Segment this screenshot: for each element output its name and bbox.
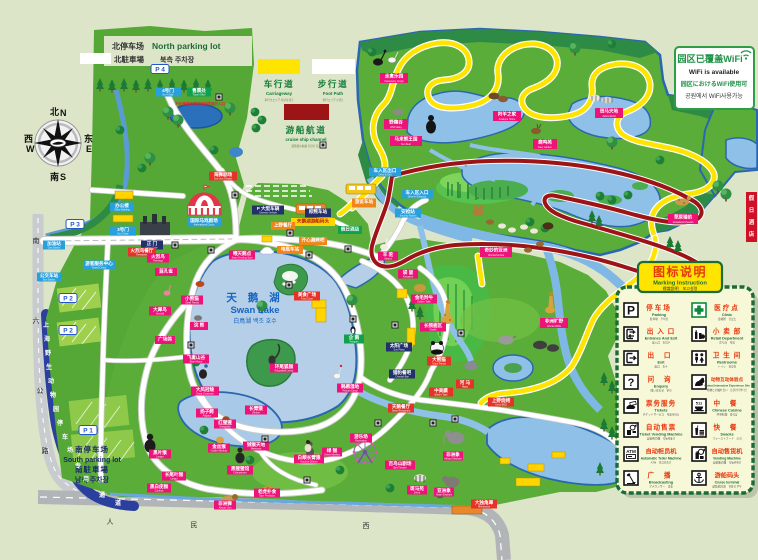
svg-text:Retail Department: Retail Department <box>711 337 744 341</box>
svg-text:チケットサービス 매표서비스: チケットサービス 매표서비스 <box>643 413 680 417</box>
svg-text:Antelope Home: Antelope Home <box>499 118 516 121</box>
svg-text:Giant Panda: Giant Panda <box>432 363 446 366</box>
svg-text:Security Station: Security Station <box>400 215 417 218</box>
svg-text:南: 南 <box>50 171 59 182</box>
svg-text:Swan Lake: Swan Lake <box>230 305 279 316</box>
svg-text:野: 野 <box>45 349 51 357</box>
svg-text:511: 511 <box>696 401 703 406</box>
svg-text:Cassowary Jungle: Cassowary Jungle <box>384 80 404 83</box>
svg-text:No.3 Gate: No.3 Gate <box>118 233 130 236</box>
svg-text:ATM: ATM <box>626 449 636 454</box>
svg-text:北: 北 <box>50 106 59 117</box>
svg-text:W: W <box>26 144 35 154</box>
svg-text:Animal Interactive Experience: Animal Interactive Experience Site <box>704 384 750 388</box>
svg-text:西: 西 <box>363 522 370 530</box>
svg-text:Restrooms: Restrooms <box>717 361 737 365</box>
svg-text:车行道: 车行道 <box>264 78 295 89</box>
svg-text:动: 动 <box>48 377 54 385</box>
svg-text:Colobus: Colobus <box>155 490 165 493</box>
svg-text:車行きエリア 차량 통행로: 車行きエリア 차량 통행로 <box>265 98 295 102</box>
svg-text:道: 道 <box>115 499 121 507</box>
svg-text:Sea Lion Theater: Sea Lion Theater <box>214 178 233 181</box>
svg-text:酒: 酒 <box>749 218 755 226</box>
svg-text:路: 路 <box>42 446 49 455</box>
svg-text:上: 上 <box>43 321 49 329</box>
svg-text:cruise ship channel: cruise ship channel <box>286 137 327 142</box>
svg-text:Bird Theater: Bird Theater <box>393 467 406 470</box>
svg-text:African Elephant: African Elephant <box>444 458 462 461</box>
svg-text:卫 生 间: 卫 生 间 <box>713 351 741 360</box>
svg-text:停车场: 停车场 <box>646 303 672 312</box>
svg-text:专: 专 <box>75 462 81 470</box>
svg-text:공원에서 WiFi사용가능: 공원에서 WiFi사용가능 <box>685 92 743 100</box>
svg-text:Wild Valley: Wild Valley <box>390 126 402 129</box>
svg-text:診療所 진료소: 診療所 진료소 <box>718 317 737 321</box>
svg-text:Golden Monkey: Golden Monkey <box>211 450 229 453</box>
svg-text:广 播: 广 播 <box>647 471 674 480</box>
svg-text:Vending Machine: Vending Machine <box>713 457 741 461</box>
svg-text:蓝孔雀: 蓝孔雀 <box>159 267 173 274</box>
svg-text:出入口 출입구: 出入口 출입구 <box>652 341 671 345</box>
svg-text:马来熊王国: 马来熊王国 <box>395 136 418 143</box>
svg-text:海: 海 <box>44 335 50 343</box>
svg-text:快 餐: 快 餐 <box>713 423 740 432</box>
svg-text:Carriageway: Carriageway <box>266 91 293 96</box>
svg-text:P 4: P 4 <box>155 67 165 74</box>
svg-text:自動販売機 자동판매기: 自動販売機 자동판매기 <box>713 461 742 465</box>
svg-text:N: N <box>60 108 67 118</box>
svg-text:Ticket Office: Ticket Office <box>192 94 206 97</box>
svg-text:P 3: P 3 <box>70 222 80 229</box>
svg-text:步行道: 步行道 <box>318 78 349 89</box>
svg-text:开心涮烤吧: 开心涮烤吧 <box>302 236 325 243</box>
svg-text:Great Curassow: Great Curassow <box>196 393 214 396</box>
svg-text:医疗点: 医疗点 <box>714 303 740 312</box>
svg-text:Entrance And Exit: Entrance And Exit <box>645 337 678 341</box>
svg-text:Gibbon: Gibbon <box>252 412 260 415</box>
svg-text:Wonderful Asia: Wonderful Asia <box>488 254 505 257</box>
svg-text:Clinic: Clinic <box>722 313 732 317</box>
svg-text:民: 民 <box>191 521 198 529</box>
svg-text:Parking: Parking <box>652 313 667 317</box>
svg-text:斑马天地: 斑马天地 <box>600 108 619 115</box>
svg-text:P 2: P 2 <box>63 296 73 303</box>
svg-text:日: 日 <box>749 207 755 214</box>
svg-text:Deer Garden: Deer Garden <box>538 146 552 149</box>
svg-text:African Wilds: African Wilds <box>547 325 562 328</box>
svg-text:问 询: 问 询 <box>647 375 674 384</box>
svg-text:遊覧船の航路 유람선 항로: 遊覧船の航路 유람선 항로 <box>292 144 322 148</box>
svg-text:Pelican Camp: Pelican Camp <box>343 390 359 393</box>
svg-text:ATM 현금인출기: ATM 현금인출기 <box>651 461 672 465</box>
svg-text:Langur: Langur <box>170 478 178 481</box>
svg-text:International Circus: International Circus <box>194 224 215 227</box>
svg-text:Foot Path: Foot Path <box>323 91 344 96</box>
svg-text:浣 熊: 浣 熊 <box>194 321 205 328</box>
svg-text:游览车站: 游览车站 <box>355 198 374 205</box>
svg-text:自動券売機 자동매표기: 自動券売機 자동매표기 <box>647 437 676 441</box>
svg-text:园区におけるWiFi使用可: 园区におけるWiFi使用可 <box>681 80 748 88</box>
svg-text:人: 人 <box>107 518 114 526</box>
svg-text:売り店 매점: 売り店 매점 <box>719 341 735 345</box>
svg-text:Ring-tailed Lemur: Ring-tailed Lemur <box>275 370 294 373</box>
svg-text:African Lion: African Lion <box>219 507 232 510</box>
svg-text:南停车场: 南停车场 <box>75 444 109 454</box>
svg-text:Cheetah Bar: Cheetah Bar <box>395 376 409 379</box>
svg-text:Drive-in Exit: Drive-in Exit <box>379 174 392 177</box>
svg-text:白鳥湖 백조 호수: 白鳥湖 백조 호수 <box>233 317 277 325</box>
svg-text:场: 场 <box>67 446 73 454</box>
svg-text:Recreation: Recreation <box>355 440 367 443</box>
svg-text:鹿鸣苑: 鹿鸣苑 <box>538 139 552 146</box>
svg-text:Sun Plaza: Sun Plaza <box>394 349 406 352</box>
svg-text:Drive-in Entrance: Drive-in Entrance <box>408 196 427 199</box>
svg-text:草原猎豹: 草原猎豹 <box>674 214 693 221</box>
svg-text:Sun Bear: Sun Bear <box>401 143 411 146</box>
svg-text:Kangaroo: Kangaroo <box>403 276 414 279</box>
svg-text:公: 公 <box>37 387 44 395</box>
svg-text:Cruise terminal: Cruise terminal <box>715 481 740 485</box>
svg-text:羚羊之家: 羚羊之家 <box>498 111 517 118</box>
svg-text:Bus Station: Bus Station <box>43 279 56 282</box>
svg-text:Office Building: Office Building <box>114 209 130 212</box>
svg-text:园区已覆盖WiFi: 园区已覆盖WiFi <box>677 53 742 64</box>
svg-text:Penguin: Penguin <box>350 341 359 344</box>
svg-text:假: 假 <box>749 194 755 202</box>
svg-text:Baird's Tapir: Baird's Tapir <box>434 394 447 397</box>
svg-text:园: 园 <box>53 405 59 413</box>
svg-text:アナウンサー 방송: アナウンサー 방송 <box>649 485 673 489</box>
svg-text:E: E <box>86 144 92 154</box>
svg-text:North parking lot: North parking lot <box>152 41 221 51</box>
svg-text:不含骑乘动物园体验项目的入口: 不含骑乘动物园体验项目的入口 <box>175 101 226 106</box>
svg-text:歩行エリア 보행로: 歩行エリア 보행로 <box>323 98 344 102</box>
svg-text:S: S <box>60 172 66 182</box>
svg-text:WiFi is available: WiFi is available <box>689 69 740 76</box>
svg-text:問い合わせ 문의: 問い合わせ 문의 <box>650 389 672 393</box>
svg-text:Gas Station: Gas Station <box>48 247 61 250</box>
svg-text:Rhinoceros: Rhinoceros <box>478 506 491 509</box>
svg-text:Swan Feeding Spot: Swan Feeding Spot <box>232 257 253 260</box>
svg-text:ファーストフード 스낵: ファーストフード 스낵 <box>713 437 743 441</box>
svg-text:西: 西 <box>24 134 33 144</box>
svg-text:Langur: Langur <box>156 456 164 459</box>
svg-text:Swan Restaurant: Swan Restaurant <box>392 410 411 413</box>
svg-text:Hornbill: Hornbill <box>156 313 165 316</box>
svg-text:电瓶车站: 电瓶车站 <box>281 245 300 252</box>
svg-text:通: 通 <box>99 491 105 499</box>
svg-text:Alpaca: Alpaca <box>384 258 392 261</box>
svg-text:非洲旷野: 非洲旷野 <box>545 318 564 325</box>
svg-text:Roar Mount: Roar Mount <box>190 361 203 364</box>
svg-text:上野餐厅: 上野餐厅 <box>274 221 293 228</box>
svg-text:Golden Takin: Golden Takin <box>417 301 432 304</box>
svg-text:图标说明: 图标说明 <box>653 264 707 279</box>
svg-text:Orangutan: Orangutan <box>219 426 231 429</box>
svg-text:P: P <box>627 304 635 318</box>
svg-text:Tourist Center: Tourist Center <box>92 267 107 270</box>
svg-text:Enquiry: Enquiry <box>654 385 669 389</box>
svg-text:中 餐: 中 餐 <box>713 399 740 408</box>
svg-text:Giraffe: Giraffe <box>429 329 437 332</box>
svg-text:奇妙的亚洲: 奇妙的亚洲 <box>485 247 508 254</box>
svg-text:走禽乐园: 走禽乐园 <box>384 73 404 80</box>
svg-text:店: 店 <box>749 230 755 238</box>
svg-text:六: 六 <box>33 316 40 325</box>
svg-text:天鹅湖游船码头: 天鹅湖游船码头 <box>297 217 330 224</box>
svg-text:Hoolock Gibbon: Hoolock Gibbon <box>300 461 318 464</box>
svg-text:自动售货机: 自动售货机 <box>712 448 744 456</box>
svg-text:物: 物 <box>50 391 56 399</box>
svg-text:Oversize Vehicle: Oversize Vehicle <box>259 212 277 215</box>
svg-text:小 卖 部: 小 卖 部 <box>713 327 741 336</box>
svg-text:South parking lot: South parking lot <box>63 457 121 464</box>
svg-text:票务服务: 票务服务 <box>646 399 676 408</box>
svg-text:Exit: Exit <box>658 361 666 365</box>
svg-text:野趣谷: 野趣谷 <box>389 119 403 126</box>
svg-text:出口 출구: 出口 출구 <box>654 365 668 369</box>
svg-text:駐車場 주차장: 駐車場 주차장 <box>650 317 669 321</box>
svg-text:Small Panda: Small Panda <box>185 302 199 305</box>
svg-text:Restaurant: Restaurant <box>136 254 148 257</box>
svg-text:Ueno BBQ: Ueno BBQ <box>495 404 507 407</box>
svg-text:No.4 Gate: No.4 Gate <box>163 94 175 97</box>
svg-text:北停车场: 北停车场 <box>112 41 144 51</box>
svg-text:Chimpanzee: Chimpanzee <box>233 472 247 475</box>
svg-text:用: 用 <box>82 476 89 483</box>
svg-text:Marmoset: Marmoset <box>251 448 262 451</box>
svg-text:Snacks: Snacks <box>720 433 733 437</box>
svg-text:Asian Elephant: Asian Elephant <box>436 494 452 497</box>
svg-text:남측 주차장: 남측 주차장 <box>75 475 110 484</box>
svg-text:Ticket Vending Machine: Ticket Vending Machine <box>640 433 683 437</box>
svg-text:自动柜员机: 自动柜员机 <box>646 448 678 456</box>
svg-text:Grassland Cheetah: Grassland Cheetah <box>673 221 694 224</box>
svg-text:动物互动体验点: 动物互动体验点 <box>711 376 744 383</box>
svg-text:Tickets: Tickets <box>654 409 667 413</box>
svg-text:Hippo: Hippo <box>462 386 469 389</box>
svg-text:停: 停 <box>57 419 63 427</box>
svg-text:Zebra World: Zebra World <box>602 115 616 118</box>
svg-text:動物との触れ合い 동물인터랙티브: 動物との触れ合い 동물인터랙티브 <box>707 388 748 392</box>
svg-text:Green Monkey: Green Monkey <box>324 454 340 457</box>
svg-text:トイレ 화장실: トイレ 화장실 <box>718 365 737 369</box>
svg-text:中華料理 중식당: 中華料理 중식당 <box>717 413 738 417</box>
svg-text:?: ? <box>628 377 635 389</box>
svg-text:Flamingo: Flamingo <box>153 260 164 263</box>
svg-text:车: 车 <box>62 433 68 441</box>
svg-text:棕熊车站: 棕熊车站 <box>309 208 328 215</box>
svg-text:P 2: P 2 <box>63 328 73 335</box>
svg-text:天 鹅 湖: 天 鹅 湖 <box>226 291 283 304</box>
svg-text:標識説明 포고설명: 標識説明 포고설명 <box>663 285 698 291</box>
svg-text:东: 东 <box>84 133 93 144</box>
svg-text:Tiger Predation: Tiger Predation <box>259 495 276 498</box>
svg-text:游船航道: 游船航道 <box>286 124 327 135</box>
svg-text:P 1: P 1 <box>83 428 93 435</box>
svg-text:Broadcasting: Broadcasting <box>649 481 674 485</box>
svg-text:Zebra: Zebra <box>414 492 421 495</box>
svg-text:出 入 口: 出 入 口 <box>647 327 675 336</box>
svg-text:自动售票: 自动售票 <box>646 423 676 432</box>
svg-text:遊覧船埠頭 유람선 부두: 遊覧船埠頭 유람선 부두 <box>712 485 742 489</box>
svg-text:북측 주차장: 북측 주차장 <box>160 55 195 64</box>
svg-text:假日酒店: 假日酒店 <box>341 225 360 232</box>
svg-text:生: 生 <box>46 363 52 371</box>
svg-text:广场鸽: 广场鸽 <box>158 335 172 342</box>
svg-text:Alligator: Alligator <box>203 415 212 418</box>
svg-text:北駐車場: 北駐車場 <box>114 54 144 64</box>
svg-text:出 口: 出 口 <box>647 351 674 360</box>
svg-text:Chinese Cuisine: Chinese Cuisine <box>712 409 742 413</box>
svg-text:游船码头: 游船码头 <box>715 472 740 480</box>
svg-text:南: 南 <box>33 236 40 245</box>
svg-text:Food Court: Food Court <box>301 298 313 301</box>
svg-text:Automatic Teller Machine: Automatic Teller Machine <box>641 457 682 461</box>
